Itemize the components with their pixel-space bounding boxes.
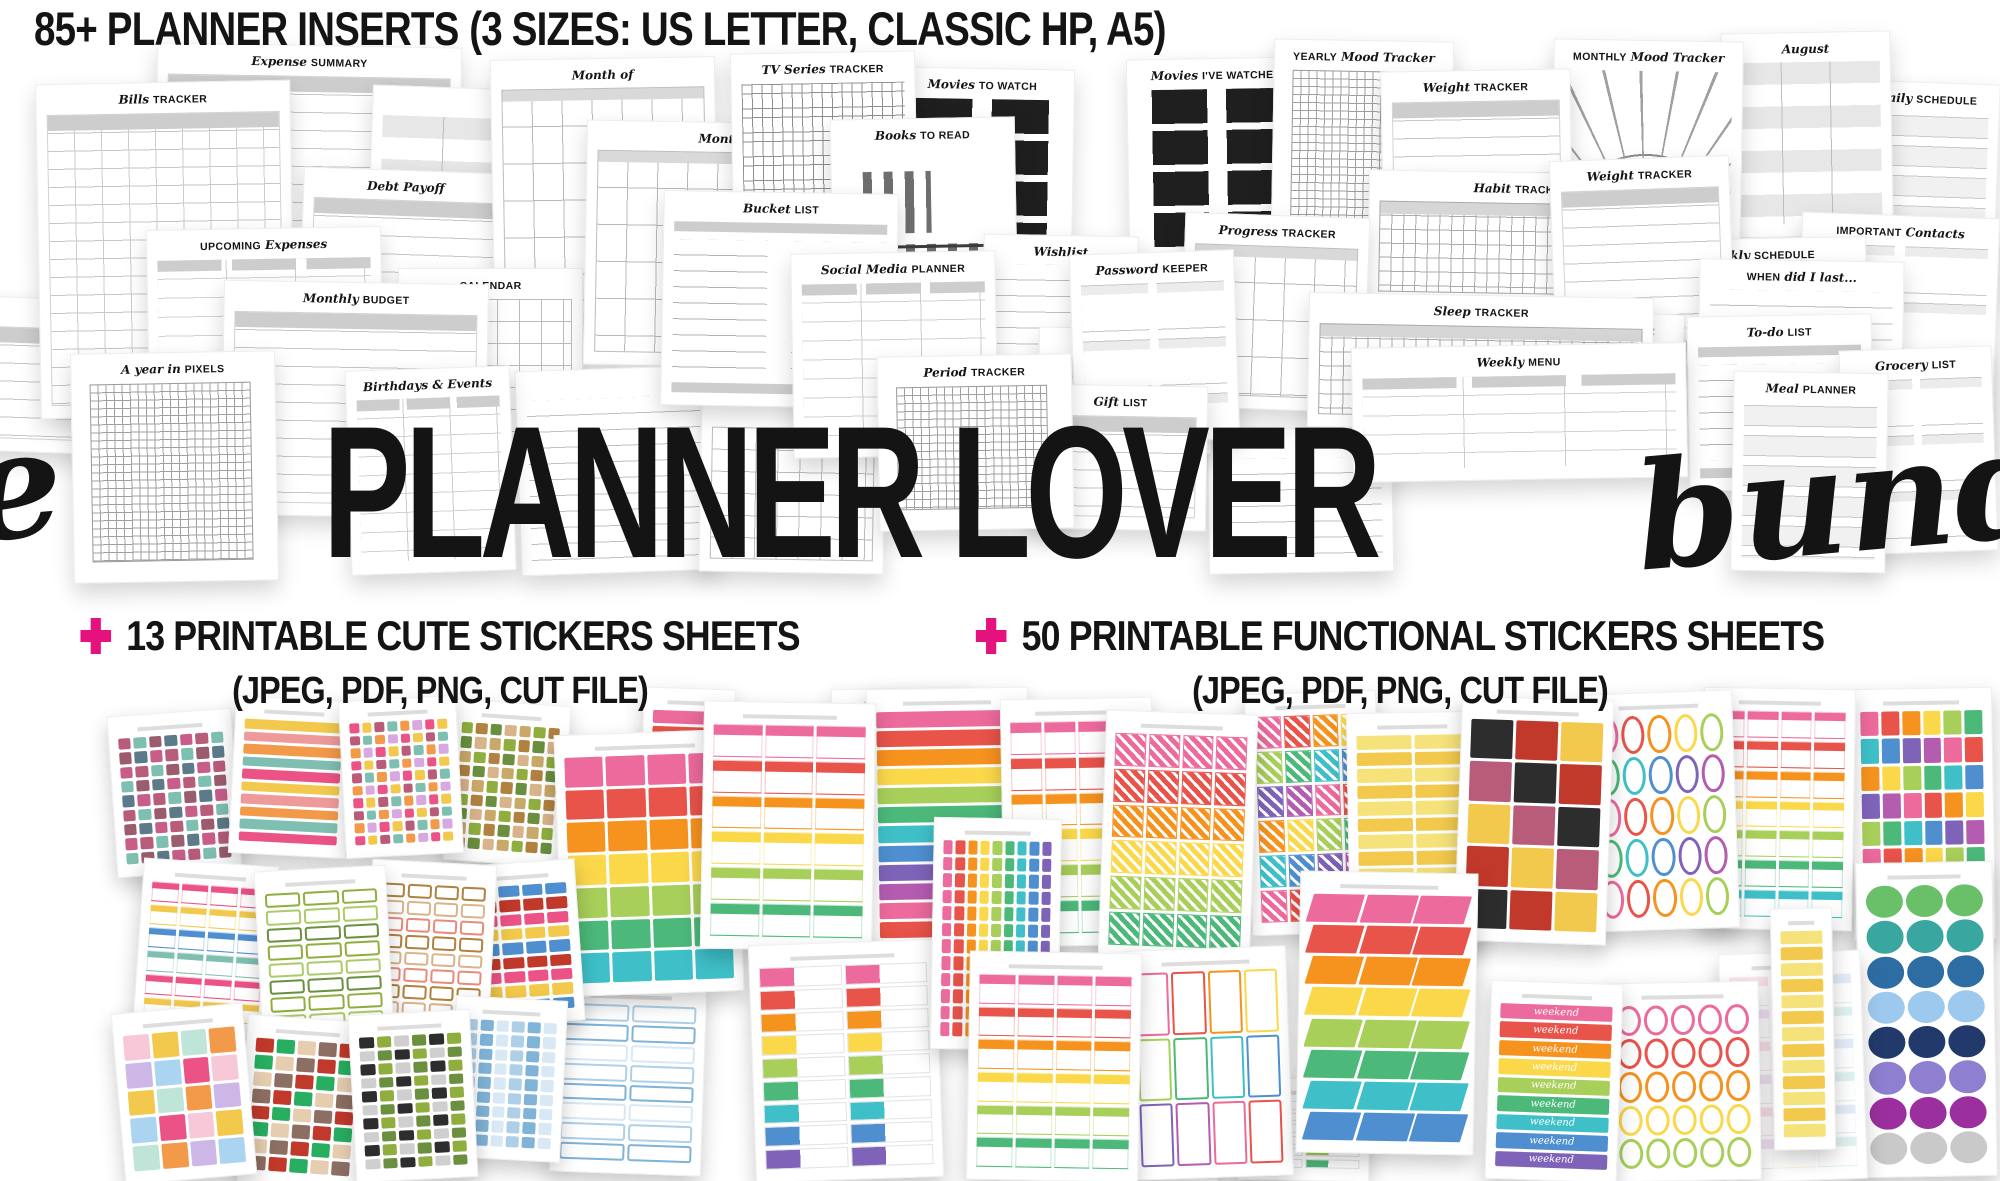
planner-insert-content <box>1362 373 1677 469</box>
sticker <box>1316 819 1343 852</box>
sticker <box>154 807 167 819</box>
sticker <box>376 747 386 757</box>
sticker <box>1303 1049 1362 1078</box>
sticker <box>290 1142 309 1157</box>
sticker <box>549 939 570 952</box>
sticker <box>1004 907 1014 921</box>
sticker <box>177 929 205 951</box>
sticker <box>531 755 543 767</box>
sticker <box>210 885 238 907</box>
sticker <box>1210 1035 1245 1099</box>
sticker <box>817 725 866 759</box>
sticker <box>627 1124 692 1143</box>
sticker <box>349 723 359 733</box>
sticker-sheet: weekendweekendweekendweekendweekendweeke… <box>1485 980 1624 1181</box>
sticker <box>123 1034 151 1061</box>
sticker <box>1358 801 1413 816</box>
title-script-part: Grocery <box>1875 358 1928 374</box>
sticker <box>1781 995 1823 1009</box>
sticker <box>505 985 526 998</box>
sticker <box>1142 913 1174 947</box>
sticker <box>383 1157 398 1168</box>
sticker <box>1004 874 1014 888</box>
sticker <box>543 1037 556 1049</box>
sticker <box>427 769 437 779</box>
sticker <box>306 942 342 958</box>
sticker <box>1619 1139 1644 1170</box>
sticker <box>161 1142 189 1169</box>
sticker <box>1946 884 1984 917</box>
sticker <box>404 951 429 966</box>
sticker <box>546 896 567 909</box>
sticker <box>205 955 233 977</box>
sticker <box>449 1086 464 1097</box>
sticker <box>198 775 211 787</box>
sticker <box>416 795 426 805</box>
sticker <box>941 1006 951 1020</box>
sticker <box>543 799 555 811</box>
sticker <box>548 925 569 938</box>
sticker <box>1255 716 1282 749</box>
sticker <box>955 857 965 871</box>
sticker <box>452 1140 467 1151</box>
sticker <box>470 808 482 820</box>
sticker-grid <box>143 881 267 1025</box>
sticker <box>1726 1070 1751 1101</box>
sticker <box>1644 1038 1669 1069</box>
sticker <box>813 905 862 939</box>
sticker <box>1470 719 1513 760</box>
sticker <box>418 1156 433 1167</box>
sticker <box>763 832 812 866</box>
sticker <box>255 1038 274 1053</box>
sticker <box>375 734 385 744</box>
sticker <box>477 1077 490 1089</box>
sticker <box>565 789 604 820</box>
sticker <box>1173 1037 1208 1101</box>
sticker <box>212 760 225 772</box>
sticker <box>397 1103 412 1114</box>
sticker <box>303 890 339 906</box>
sticker <box>1355 1112 1414 1141</box>
sticker <box>1862 821 1880 846</box>
sticker <box>1698 1004 1723 1035</box>
sticker <box>1618 1105 1643 1136</box>
sticker <box>1357 1019 1416 1048</box>
sticker <box>1302 1112 1361 1141</box>
planner-insert-content <box>1732 61 1883 226</box>
sticker <box>499 900 520 913</box>
sticker <box>559 1142 624 1161</box>
sticker <box>611 919 650 950</box>
sticker <box>1902 711 1920 736</box>
sticker <box>350 748 360 758</box>
sticker <box>1672 1104 1697 1135</box>
sticker <box>1016 1105 1052 1135</box>
sticker <box>564 757 603 788</box>
title-script-part: Birthdays & Events <box>363 376 493 394</box>
sticker <box>544 1023 557 1035</box>
sticker-sheet <box>1770 907 1836 1150</box>
sticker <box>289 1158 308 1173</box>
sticker <box>1904 821 1922 846</box>
sticker <box>188 848 201 860</box>
title-script-part: Movies <box>928 77 975 92</box>
sticker <box>542 1051 555 1063</box>
sticker <box>363 747 373 757</box>
sticker <box>1055 1073 1091 1103</box>
sticker <box>1216 736 1248 770</box>
sticker <box>563 1042 628 1061</box>
sticker <box>1356 1050 1415 1079</box>
sticker <box>629 1065 694 1084</box>
sticker <box>1045 757 1076 790</box>
sticker <box>503 957 524 970</box>
sticker <box>159 1114 187 1141</box>
sticker-sheet <box>111 1003 257 1181</box>
sticker <box>297 1041 316 1056</box>
sticker <box>1015 1138 1051 1168</box>
planner-insert-title: Debt Payoff <box>314 177 497 197</box>
sticker <box>343 923 379 939</box>
sticker <box>1509 890 1552 931</box>
sticker <box>182 762 195 774</box>
sticker <box>815 833 864 867</box>
sticker <box>392 809 402 819</box>
sticker <box>268 944 304 960</box>
sticker <box>814 869 863 903</box>
sticker <box>1651 838 1676 877</box>
planner-insert-title: MonthlyBUDGET <box>235 290 478 309</box>
sticker <box>251 1105 270 1120</box>
sticker <box>434 1141 449 1152</box>
sticker <box>305 925 341 941</box>
sticker <box>1646 1138 1671 1169</box>
sticker <box>1925 820 1943 845</box>
sticker <box>1909 1061 1947 1094</box>
sticker <box>762 868 811 902</box>
sticker <box>629 1085 694 1104</box>
title-bold-part: TRACKER <box>1282 227 1337 241</box>
sticker <box>1780 741 1811 768</box>
sticker <box>713 724 762 758</box>
planner-insert-title: WeightTRACKER <box>1560 165 1718 186</box>
sticker <box>1182 735 1214 769</box>
sticker-grid <box>247 1038 358 1177</box>
sticker <box>1881 711 1899 736</box>
sticker <box>148 927 176 949</box>
sticker <box>1356 735 1411 750</box>
sticker <box>1304 987 1363 1016</box>
sticker <box>967 923 977 937</box>
sticker <box>1469 761 1512 802</box>
sticker <box>507 1121 520 1133</box>
sticker-grid <box>1595 713 1730 919</box>
sticker <box>942 940 952 954</box>
sticker <box>176 953 204 975</box>
sticker <box>362 1091 377 1102</box>
sticker <box>139 823 152 835</box>
planner-insert-content <box>1741 402 1877 560</box>
sticker <box>1209 915 1241 949</box>
sticker <box>469 823 481 835</box>
sticker-sheet <box>966 951 1142 1181</box>
sticker <box>136 780 149 792</box>
sticker <box>196 747 209 759</box>
sticker <box>1211 880 1243 914</box>
sticker <box>650 852 689 883</box>
sticker <box>1924 765 1942 790</box>
sticker <box>362 1104 377 1115</box>
sticker <box>403 968 428 983</box>
sticker <box>1017 1040 1053 1070</box>
sticker <box>1868 1026 1906 1059</box>
sticker <box>1949 1095 1987 1128</box>
sticker <box>654 950 693 981</box>
sticker <box>877 748 1019 767</box>
sticker <box>1645 1072 1670 1103</box>
sticker <box>122 795 135 807</box>
sticker <box>429 1033 444 1044</box>
sticker <box>416 1129 431 1140</box>
sticker <box>1030 842 1040 856</box>
sticker <box>387 721 397 731</box>
sticker <box>460 736 472 748</box>
sticker <box>487 767 499 779</box>
title-bold-part: TRACKER <box>971 366 1025 379</box>
planner-insert-content <box>357 396 506 563</box>
sticker <box>140 837 153 849</box>
sticker <box>526 827 538 839</box>
functional-stickers-section-head: 50 PRINTABLE FUNCTIONAL STICKERS SHEETS … <box>850 612 1950 713</box>
sticker: weekend <box>1500 1022 1612 1041</box>
sticker <box>1181 771 1213 805</box>
sticker <box>1862 794 1880 819</box>
sticker <box>439 743 449 753</box>
sticker <box>1176 1102 1211 1166</box>
title-bold-part: LIST <box>1123 397 1148 409</box>
sticker <box>1029 891 1039 905</box>
sticker <box>413 1075 428 1086</box>
sticker <box>185 805 198 817</box>
sticker <box>169 806 182 818</box>
sticker <box>414 757 424 767</box>
title-bold-part: LIST <box>1787 326 1812 338</box>
sticker <box>1704 836 1729 875</box>
sticker <box>1413 896 1472 925</box>
sticker <box>562 1062 627 1081</box>
sticker <box>1246 1034 1281 1098</box>
sticker <box>991 924 1001 938</box>
title-bold-part: LIST <box>795 204 820 216</box>
sticker <box>762 904 811 938</box>
sticker <box>443 831 453 841</box>
title-script-part: A year in <box>121 362 181 377</box>
sticker <box>428 782 438 792</box>
sticker <box>1113 769 1145 803</box>
sticker <box>1467 803 1510 844</box>
sticker <box>1673 1138 1698 1169</box>
cute-stickers-section-head: 13 PRINTABLE CUTE STICKERS SHEETS (JPEG,… <box>0 612 880 713</box>
sticker <box>1813 771 1844 798</box>
sticker-grid <box>349 719 453 846</box>
page-title: 85+ PLANNER INSERTS (3 SIZES: US LETTER,… <box>34 4 1166 53</box>
sticker <box>1882 766 1900 791</box>
title-script-part: Mood Tracker <box>1341 50 1435 66</box>
sticker <box>844 962 927 985</box>
sticker <box>434 902 459 917</box>
sticker <box>399 1130 414 1141</box>
sticker <box>352 773 362 783</box>
sticker-grid <box>1866 884 1988 1165</box>
sticker <box>209 1026 237 1053</box>
sticker <box>213 774 226 786</box>
sticker <box>525 1079 538 1091</box>
sticker-grid <box>1780 931 1826 1138</box>
sticker <box>1139 1104 1174 1168</box>
sticker <box>1557 807 1600 848</box>
sticker <box>561 1102 626 1121</box>
sticker <box>395 1062 410 1073</box>
title-script-part: Gift <box>1093 395 1119 409</box>
sticker <box>1883 821 1901 846</box>
sticker <box>1945 820 1963 845</box>
sticker <box>1286 785 1313 818</box>
sticker <box>528 798 540 810</box>
sticker <box>967 890 977 904</box>
sticker <box>1745 830 1776 857</box>
sticker <box>712 795 761 829</box>
planner-insert-page: WeeklyMENU <box>1351 342 1688 483</box>
sticker <box>1410 1082 1469 1111</box>
sticker <box>130 1117 158 1144</box>
sticker <box>404 808 414 818</box>
title-script-part: Bucket <box>743 201 791 216</box>
sticker <box>504 971 525 984</box>
sticker <box>1212 844 1244 878</box>
sticker <box>1358 834 1413 849</box>
sticker <box>544 785 556 797</box>
sticker <box>1287 820 1314 853</box>
sticker <box>124 824 137 836</box>
sticker <box>1906 920 1944 953</box>
sticker <box>476 1105 489 1117</box>
sticker-sheet <box>1098 709 1259 962</box>
sticker <box>210 731 223 743</box>
sticker <box>1909 1096 1947 1129</box>
sticker <box>1094 1041 1130 1071</box>
planner-insert-title: UPCOMINGExpenses <box>157 236 370 255</box>
sticker: weekend <box>1499 1040 1611 1059</box>
sticker <box>312 1126 331 1141</box>
sticker <box>1676 796 1701 835</box>
sticker <box>943 890 953 904</box>
sticker <box>270 996 306 1012</box>
sticker <box>187 1112 215 1139</box>
sticker <box>497 839 509 851</box>
title-script-part: Progress <box>1218 223 1278 239</box>
sticker <box>360 1050 375 1061</box>
sticker <box>208 908 236 930</box>
sticker <box>539 1109 552 1121</box>
sticker <box>500 796 512 808</box>
sticker <box>763 1102 846 1125</box>
sticker <box>120 767 133 779</box>
sticker <box>317 1059 336 1074</box>
sticker <box>1944 738 1962 763</box>
sticker <box>528 1022 541 1034</box>
sticker-grid <box>453 722 560 855</box>
sticker <box>362 735 372 745</box>
sticker <box>764 1124 847 1147</box>
sticker <box>516 769 528 781</box>
sticker <box>1283 715 1310 748</box>
title-bold-part: TO READ <box>920 129 970 142</box>
sticker <box>295 1074 314 1089</box>
sticker <box>442 806 452 816</box>
planner-insert-title: PasswordKEEPER <box>1080 260 1223 280</box>
sticker <box>453 1154 468 1165</box>
sticker <box>476 723 488 735</box>
sticker <box>417 807 427 817</box>
sticker <box>171 835 184 847</box>
sticker <box>1146 806 1178 840</box>
sticker <box>118 738 131 750</box>
sticker <box>184 791 197 803</box>
sticker <box>186 819 199 831</box>
sticker <box>269 979 305 995</box>
sticker <box>1782 1011 1824 1025</box>
title-script-part: Bills <box>118 92 149 107</box>
sticker <box>1860 712 1878 737</box>
sticker: weekend <box>1498 1058 1610 1077</box>
sticker <box>511 840 523 852</box>
sticker <box>1109 876 1141 910</box>
sticker <box>1094 1074 1130 1104</box>
sticker <box>477 1091 490 1103</box>
title-bold-part: YEARLY <box>1293 51 1337 64</box>
sticker <box>353 798 363 808</box>
sticker <box>1867 956 1905 989</box>
sticker-grid <box>1464 719 1603 932</box>
sticker <box>1671 1005 1696 1036</box>
sticker <box>1812 861 1843 888</box>
sticker <box>365 1145 380 1156</box>
sticker <box>430 819 440 829</box>
sticker <box>941 973 951 987</box>
sticker <box>1028 924 1038 938</box>
planner-insert-content <box>896 385 1049 511</box>
sticker <box>652 917 691 948</box>
sticker <box>480 1034 493 1046</box>
plus-icon <box>976 618 1007 654</box>
sticker <box>151 881 179 903</box>
sticker <box>651 884 690 915</box>
sticker <box>541 828 553 840</box>
sticker <box>1746 770 1777 797</box>
sticker <box>165 749 178 761</box>
sticker <box>413 1061 428 1072</box>
sticker <box>1778 860 1809 887</box>
sticker <box>1645 1105 1670 1136</box>
sticker <box>416 1115 431 1126</box>
sticker <box>382 1144 397 1155</box>
sticker <box>1747 710 1778 737</box>
sticker <box>492 1092 505 1104</box>
sticker <box>400 720 410 730</box>
sticker <box>435 1155 450 1166</box>
sticker <box>1041 925 1051 939</box>
